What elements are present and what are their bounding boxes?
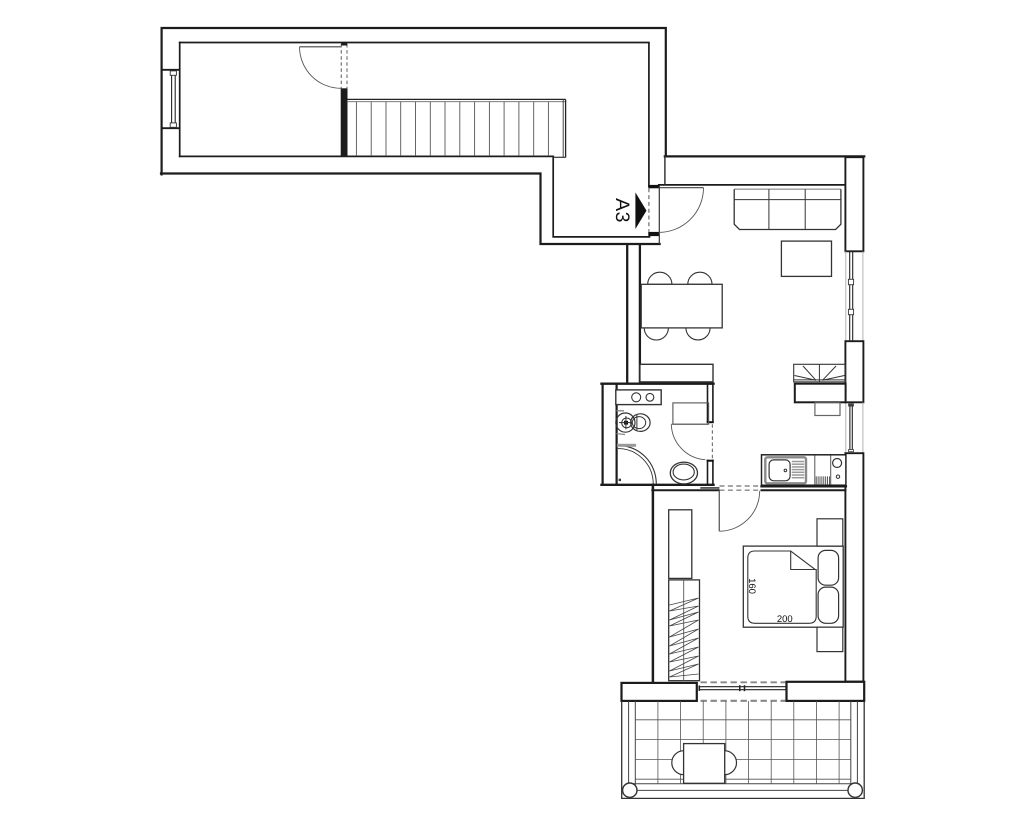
svg-text:200: 200 bbox=[777, 614, 793, 625]
svg-text:160: 160 bbox=[746, 578, 757, 594]
svg-text:A3: A3 bbox=[611, 198, 633, 223]
